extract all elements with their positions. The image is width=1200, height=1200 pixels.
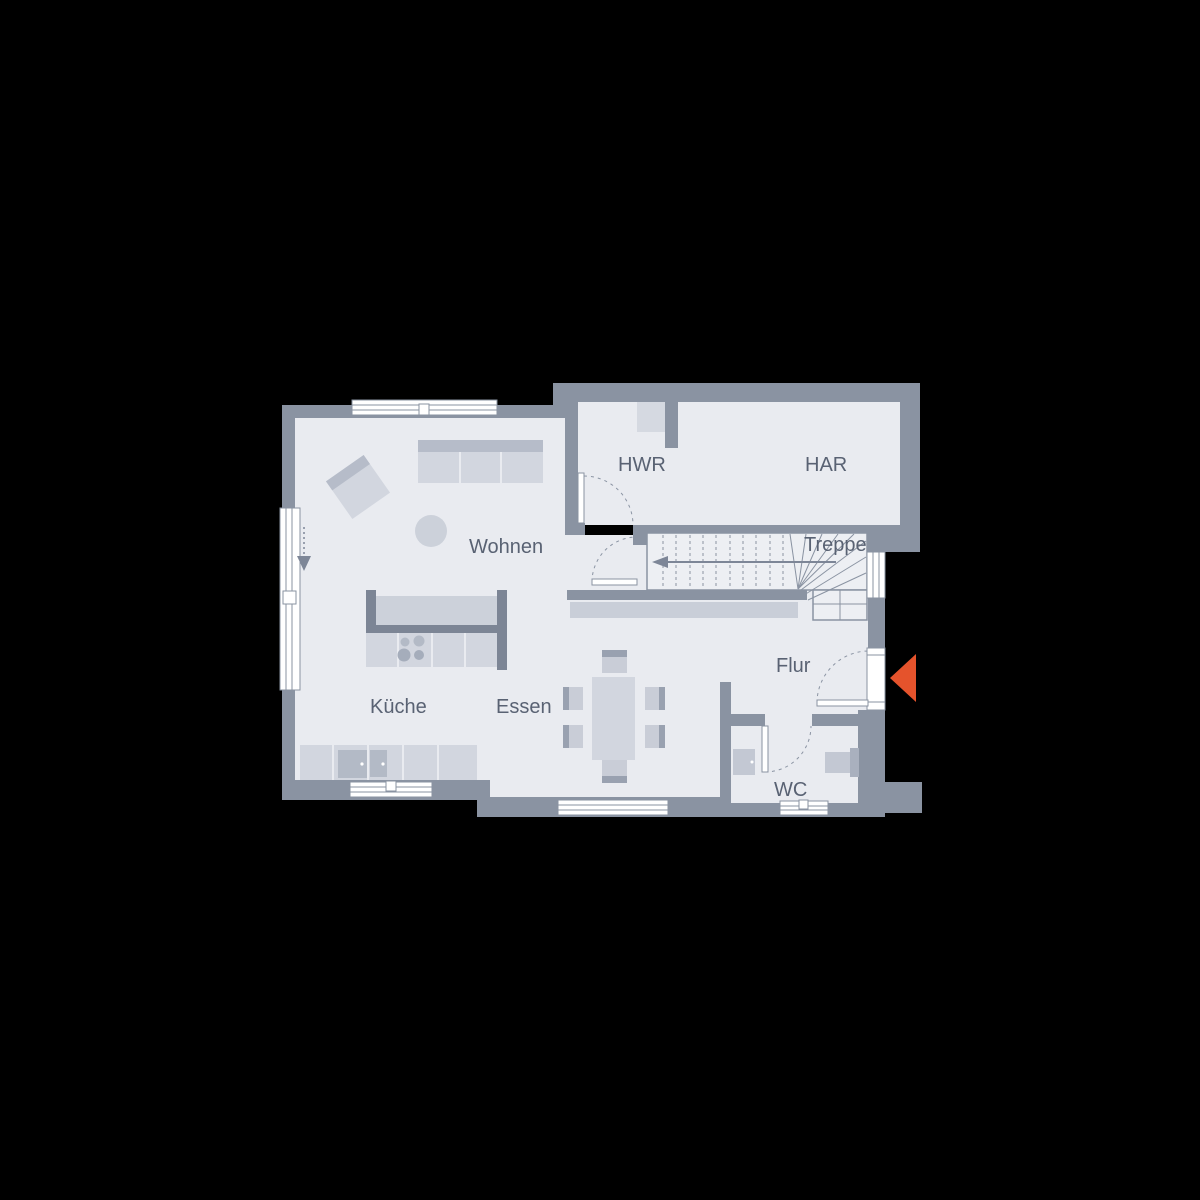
wall-segment	[665, 402, 678, 448]
wall-segment	[567, 590, 807, 600]
window-living-top	[352, 400, 497, 415]
wall-segment	[565, 402, 578, 535]
floor-plan: Wohnen HWR HAR Treppe Küche Essen Flur W…	[0, 0, 1200, 1200]
room-label-dining: Essen	[496, 696, 552, 718]
kitchen-island	[366, 590, 507, 670]
dining-chair	[602, 760, 627, 783]
wall-segment	[553, 383, 920, 402]
wall-segment	[565, 523, 585, 535]
wall-segment	[633, 525, 647, 545]
sofa	[418, 440, 543, 483]
sideboard	[570, 602, 798, 618]
window-wc	[780, 800, 828, 815]
floor-plan-canvas: Wohnen HWR HAR Treppe Küche Essen Flur W…	[0, 0, 1200, 1200]
window-dining	[558, 800, 668, 815]
door-leaf	[578, 473, 584, 523]
window-living-left	[280, 508, 300, 690]
room-label-technical: HAR	[805, 454, 847, 476]
room-label-living: Wohnen	[469, 536, 543, 558]
coffee-table	[415, 515, 447, 547]
wall-segment	[883, 782, 922, 813]
room-label-staircase: Treppe	[804, 534, 867, 556]
entrance-arrow-icon	[890, 654, 916, 702]
dining-chair	[645, 687, 665, 710]
dining-chair	[645, 725, 665, 748]
wall-segment	[731, 714, 765, 726]
dining-table	[592, 677, 635, 760]
toilet	[825, 752, 852, 773]
room-label-kitchen: Küche	[370, 696, 427, 718]
door-leaf	[817, 700, 868, 706]
dining-chair	[563, 687, 583, 710]
door-leaf	[592, 579, 637, 585]
wall-segment	[553, 402, 566, 418]
dining-chair	[602, 650, 627, 673]
door-leaf	[762, 726, 768, 772]
window-stair-right	[867, 552, 885, 598]
room-label-utility: HWR	[618, 454, 666, 476]
room-label-hallway: Flur	[776, 655, 811, 677]
wall-segment	[720, 682, 731, 803]
toilet-tank	[850, 748, 859, 777]
window-kitchen	[350, 781, 432, 797]
wall-segment	[812, 714, 870, 726]
kitchen-counter	[300, 745, 477, 780]
wall-segment	[858, 710, 868, 817]
room-label-toilet: WC	[774, 779, 807, 801]
utility-appliance	[637, 402, 665, 432]
dining-chair	[563, 725, 583, 748]
wall-segment	[900, 383, 920, 552]
